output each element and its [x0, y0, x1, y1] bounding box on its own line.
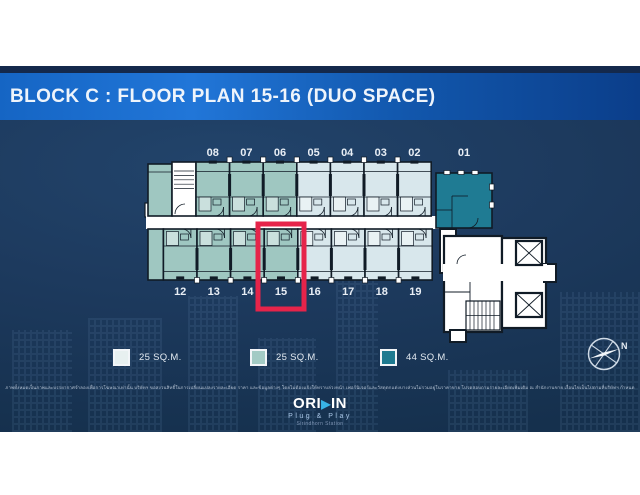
legend-swatch: [250, 349, 267, 366]
unit-19: [399, 229, 433, 280]
legend-label: 25 SQ.M.: [139, 352, 182, 363]
unit-number-label: 05: [307, 147, 319, 159]
unit-number-label: 06: [274, 147, 286, 159]
core-lifts-stairs: [440, 229, 556, 342]
compass-north-label: N: [621, 341, 628, 351]
unit-03: [364, 161, 398, 216]
legend-swatch: [380, 349, 397, 366]
brand-logo: ORI▶IN Plug & Play Sirindhorn Station: [0, 396, 640, 427]
unit-01: [436, 171, 494, 229]
unit-number-label: 15: [275, 286, 287, 298]
unit-07: [230, 161, 264, 216]
unit-05: [297, 161, 331, 216]
play-icon: ▶: [321, 397, 331, 411]
unit-number-label: 18: [376, 286, 388, 298]
page-title: BLOCK C : FLOOR PLAN 15-16 (DUO SPACE): [0, 73, 640, 120]
plan-board: 08070605040302011213141516171819 25 SQ.M…: [0, 120, 640, 432]
unit-number-label: 02: [408, 147, 420, 159]
unit-number-label: 04: [341, 147, 354, 159]
unit-04: [330, 161, 364, 216]
legend-item-44sqm-dark: 44 SQ.M.: [380, 349, 449, 366]
unit-12: [163, 229, 197, 280]
legend-item-25sqm-light: 25 SQ.M.: [113, 349, 182, 366]
unit-number-label: 13: [208, 286, 220, 298]
unit-06: [263, 161, 297, 216]
stairwell: [172, 162, 196, 216]
brand-wordmark: ORI▶IN: [0, 396, 640, 411]
unit-number-label: 16: [308, 286, 320, 298]
legend-label: 44 SQ.M.: [406, 352, 449, 363]
unit-13: [197, 229, 231, 280]
unit-number-label: 19: [409, 286, 421, 298]
banner-background: BLOCK C : FLOOR PLAN 15-16 (DUO SPACE): [0, 73, 640, 120]
screenshot-root: BLOCK C : FLOOR PLAN 15-16 (DUO SPACE) 0…: [0, 0, 640, 495]
brand-prefix: ORI: [293, 395, 321, 412]
legend-item-25sqm-medium: 25 SQ.M.: [250, 349, 319, 366]
legend-label: 25 SQ.M.: [276, 352, 319, 363]
unit-02: [398, 161, 432, 216]
disclaimer-text: ภาพทั้งหมดเป็นภาพและบรรยากาศจำลองเพื่อกา…: [0, 384, 640, 391]
title-banner: BLOCK C : FLOOR PLAN 15-16 (DUO SPACE): [0, 66, 640, 120]
unit-number-label: 03: [375, 147, 387, 159]
banner-top-strip: [0, 66, 640, 73]
compass-icon: N: [583, 331, 637, 385]
unit-number-label: 08: [207, 147, 219, 159]
unit-08: [196, 161, 230, 216]
unit-number-label: 14: [241, 286, 254, 298]
unit-number-label: 12: [174, 286, 186, 298]
project-name: Sirindhorn Station: [0, 422, 640, 427]
unit-number-label: 07: [240, 147, 252, 159]
unit-18: [365, 229, 399, 280]
legend-swatch: [113, 349, 130, 366]
brand-suffix: IN: [331, 395, 347, 412]
brand-tagline: Plug & Play: [0, 413, 640, 420]
unit-number-label: 01: [458, 147, 470, 159]
unit-17: [331, 229, 365, 280]
unit-number-label: 17: [342, 286, 354, 298]
unit-15: [264, 229, 298, 280]
